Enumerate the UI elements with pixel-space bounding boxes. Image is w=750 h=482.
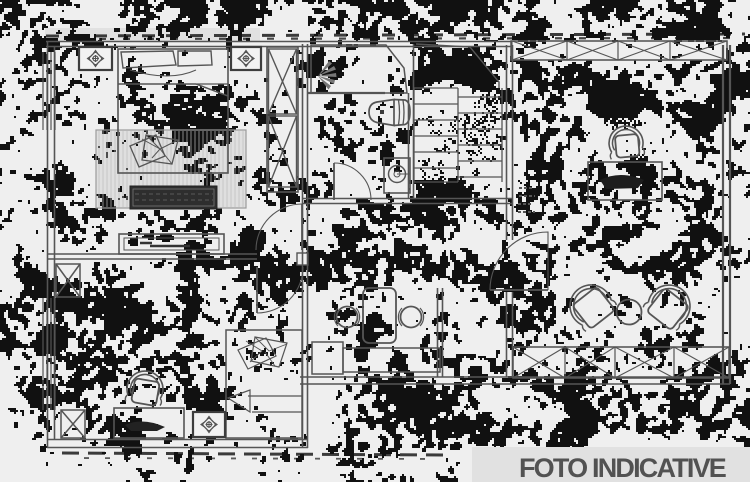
svg-text:FOTO INDICATIVE: FOTO INDICATIVE xyxy=(519,453,726,482)
